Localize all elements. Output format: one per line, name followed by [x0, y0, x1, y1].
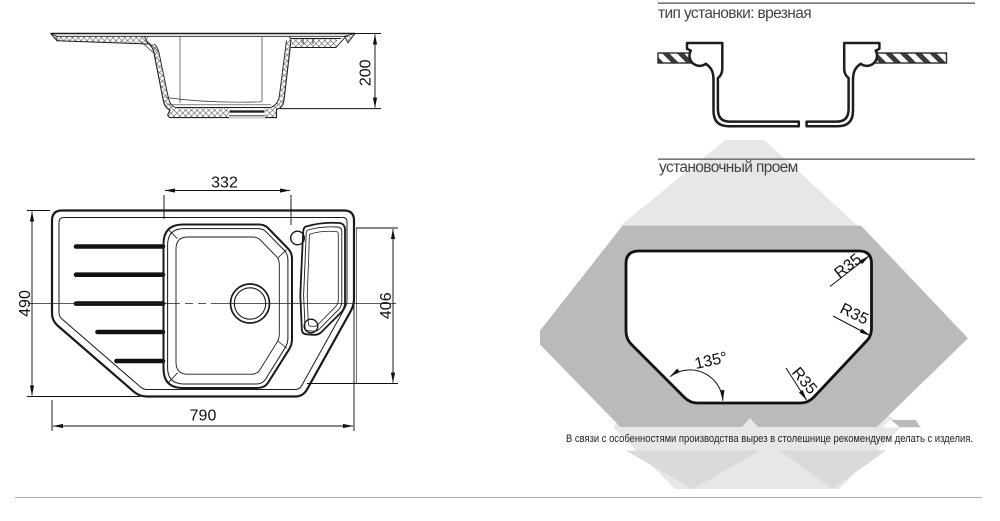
svg-text:790: 790	[190, 408, 217, 425]
svg-text:тип установки: врезная: тип установки: врезная	[658, 5, 811, 22]
svg-text:406: 406	[378, 292, 395, 319]
svg-text:200: 200	[358, 59, 375, 86]
svg-text:В связи с особенностями произв: В связи с особенностями производства выр…	[566, 433, 973, 445]
svg-text:332: 332	[211, 175, 238, 192]
svg-text:490: 490	[17, 290, 34, 317]
svg-text:установочный проем: установочный проем	[659, 159, 798, 176]
